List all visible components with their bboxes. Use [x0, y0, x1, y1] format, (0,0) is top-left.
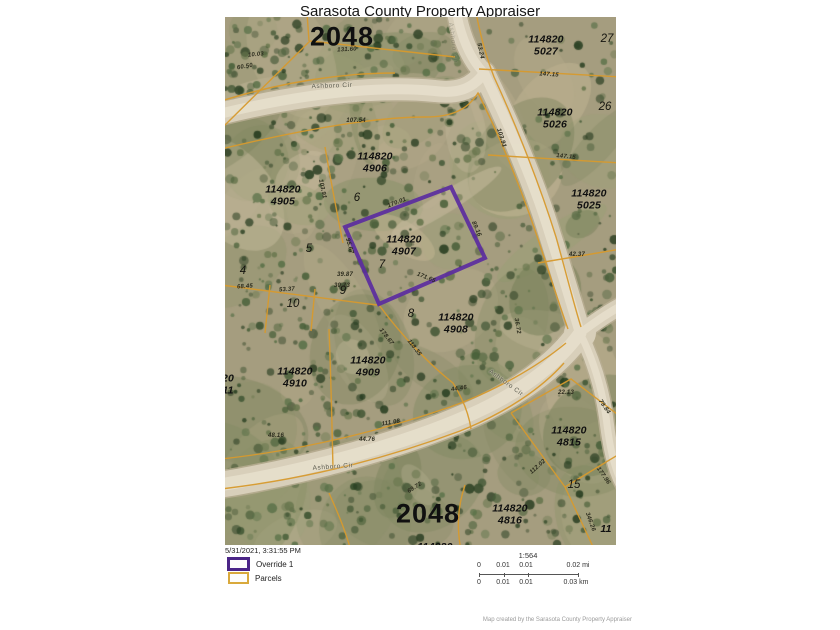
- dimension-label: 178.67: [378, 327, 395, 346]
- map-attribution: Map created by the Sarasota County Prope…: [380, 617, 632, 623]
- parcel-id-label: 114820 4908: [438, 312, 473, 335]
- page: Sarasota County Property Appraiser: [0, 0, 840, 630]
- road-name-label: Ashboro Cir: [311, 82, 352, 90]
- dimension-label: 44.76: [359, 437, 375, 443]
- legend-item-override: Override 1: [227, 558, 293, 570]
- override-swatch: [227, 557, 250, 571]
- road-name-label: Ashboro Cir: [312, 462, 353, 472]
- dimension-label: 42.37: [569, 252, 585, 258]
- parcel-id-label: 114820 5026: [537, 107, 572, 130]
- dimension-label: 107.54: [346, 118, 366, 124]
- lot-number: 8: [408, 308, 414, 320]
- dimension-label: 39.87: [337, 272, 353, 278]
- parcel-id-label: 114820 4816: [492, 503, 527, 526]
- scale-km-tick: 0: [477, 579, 481, 586]
- parcel-id-label: 114820 5027: [528, 34, 563, 57]
- parcel-id-label: 114820 5025: [571, 188, 606, 211]
- lot-number: 26: [599, 101, 612, 113]
- lot-number: 4: [240, 265, 246, 277]
- dimension-label: 10.03: [248, 51, 264, 58]
- dimension-label: 171.65: [416, 272, 436, 285]
- parcel-id-label: 20 11: [225, 373, 234, 396]
- legend-label-parcels: Parcels: [255, 574, 282, 583]
- dimension-label: 68.45: [237, 283, 253, 290]
- dimension-label: 147.15: [556, 153, 576, 161]
- scale-km-tick: 0.01: [519, 579, 533, 586]
- dimension-label: 112.02: [529, 458, 547, 475]
- scale-mi-tick: 0: [477, 562, 481, 569]
- legend-item-parcels: Parcels: [227, 572, 282, 584]
- parcel-id-label: 114820 4815: [551, 425, 586, 448]
- parcel-id-label: 11: [600, 524, 611, 536]
- lot-number: 7: [379, 259, 385, 271]
- map-labels: 20482048114820 5027114820 5026114820 502…: [225, 17, 616, 545]
- dimension-label: 346.26: [584, 512, 596, 532]
- parcels-swatch: [228, 572, 249, 584]
- dimension-label: 53.24: [475, 43, 484, 60]
- dimension-label: 103.91: [495, 128, 507, 148]
- map-image: 20482048114820 5027114820 5026114820 502…: [225, 17, 616, 545]
- lot-number: 6: [354, 192, 360, 204]
- lot-number: 10: [287, 298, 300, 310]
- parcel-id-label: 114820 4910: [277, 366, 312, 389]
- dimension-label: 36.72: [513, 318, 522, 335]
- dimension-label: 22.13: [558, 390, 574, 396]
- scale-bar: [479, 573, 579, 577]
- dimension-label: 177.96: [595, 466, 611, 485]
- section-label: 2048: [396, 499, 460, 530]
- road-name-label: Ashboro Cir: [447, 22, 459, 63]
- legend-label-override: Override 1: [256, 560, 293, 569]
- lot-number: 5: [306, 243, 312, 255]
- dimension-label: 131.60: [337, 46, 357, 53]
- dimension-label: 79.84: [597, 399, 611, 416]
- map-timestamp: 5/31/2021, 3:31:55 PM: [225, 546, 301, 555]
- dimension-label: 89.16: [470, 220, 482, 237]
- scale-km-tick: 0.03 km: [564, 579, 589, 586]
- road-name-label: Ashboro Cir: [487, 368, 524, 398]
- dimension-label: 48.16: [268, 433, 284, 439]
- lot-number: 15: [568, 479, 581, 491]
- dimension-label: 103.91: [317, 179, 327, 199]
- dimension-label: 170.01: [387, 197, 407, 210]
- parcel-id-label: 114820: [417, 542, 452, 545]
- scale-mi-tick: 0.01: [519, 562, 533, 569]
- dimension-label: 95.67: [344, 237, 354, 254]
- scale-km-tick: 0.01: [496, 579, 510, 586]
- dimension-label: 44.46: [451, 385, 468, 393]
- dimension-label: 69.72: [407, 481, 424, 495]
- parcel-id-label: 114820 4907: [386, 234, 421, 257]
- scale-ratio: 1:564: [479, 551, 577, 560]
- parcel-id-label: 114820 4906: [357, 151, 392, 174]
- parcel-id-label: 114820 4905: [265, 184, 300, 207]
- dimension-label: 53.37: [279, 286, 295, 293]
- lot-number: 27: [601, 33, 614, 45]
- parcel-id-label: 114820 4909: [350, 355, 385, 378]
- dimension-label: 30.73: [334, 283, 350, 289]
- dimension-label: 111.08: [381, 418, 400, 427]
- dimension-label: 60.50: [237, 63, 254, 72]
- scale-mi-tick: 0.01: [496, 562, 510, 569]
- scale-mi-tick: 0.02 mi: [567, 562, 590, 569]
- dimension-label: 118.35: [406, 339, 422, 358]
- dimension-label: 147.15: [539, 71, 559, 78]
